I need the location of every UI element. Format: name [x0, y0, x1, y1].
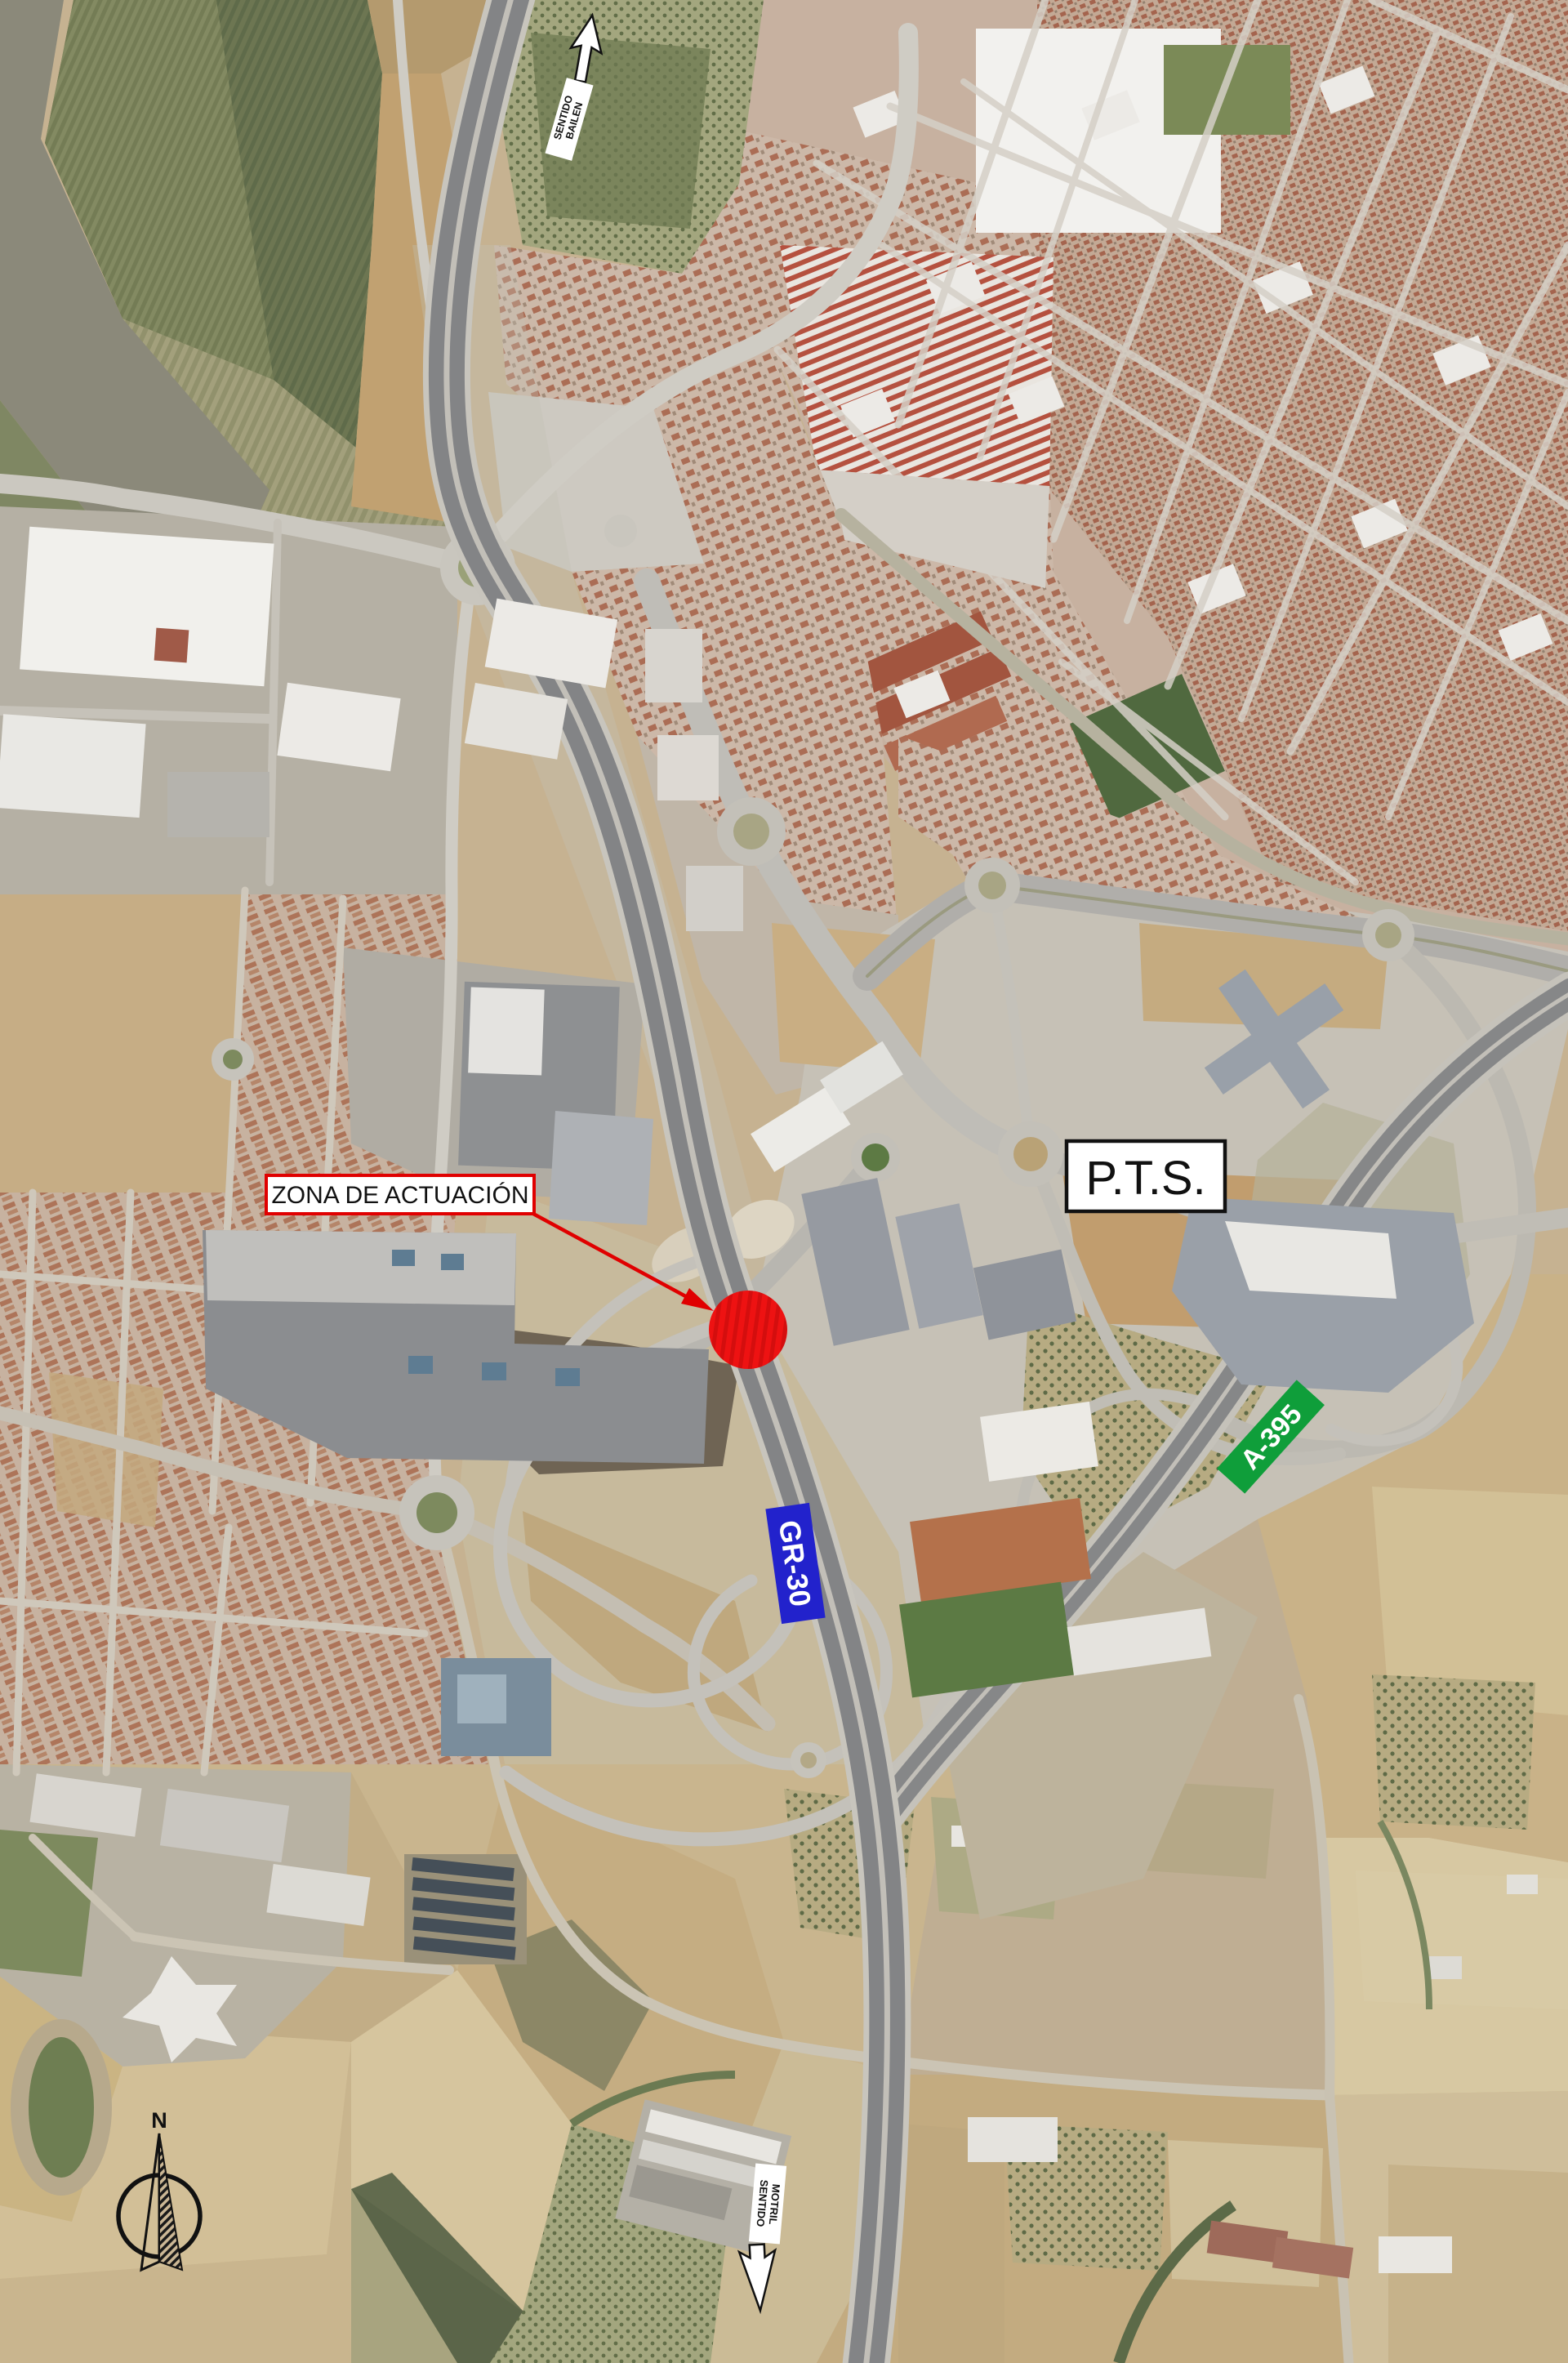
svg-text:P.T.S.: P.T.S.: [1085, 1152, 1205, 1205]
svg-text:N: N: [151, 2108, 167, 2133]
svg-text:ZONA DE ACTUACIÓN: ZONA DE ACTUACIÓN: [271, 1182, 528, 1209]
